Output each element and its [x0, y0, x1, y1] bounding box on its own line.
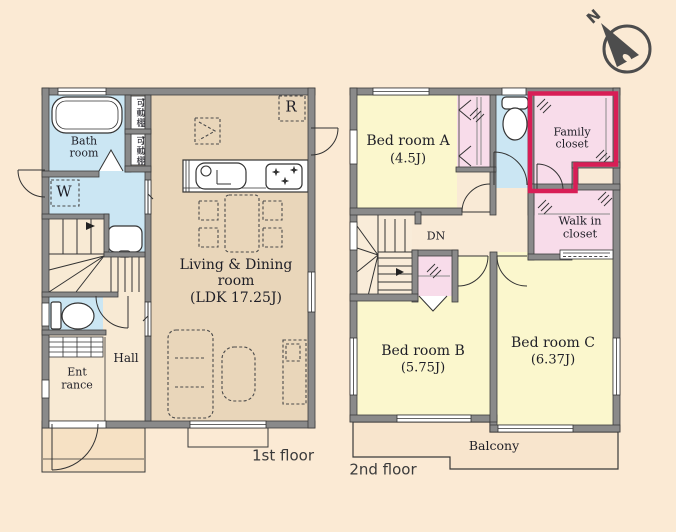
toilet-icon-1f: [51, 302, 94, 329]
entrance-porch: [42, 428, 145, 472]
movable-shelf-label-lower: 可動棚: [135, 136, 144, 166]
shoe-cabinet-icon: [49, 337, 103, 357]
second-floor-caption: 2nd floor: [349, 463, 416, 478]
movable-shelf-label-upper: 可動棚: [135, 98, 144, 128]
family-closet-label-2: closet: [556, 139, 589, 150]
kitchen-sink-icon: [196, 163, 246, 189]
bath-room-label-1: Bath: [71, 136, 97, 147]
bedroom-b-size-label: (5.75J): [401, 362, 445, 375]
balcony-label: Balcony: [469, 440, 519, 453]
bedroom-a-name-label: Bed room A: [366, 134, 449, 148]
floor1-plan: [18, 88, 338, 472]
bathtub-icon: [52, 97, 122, 133]
stairs-down-label: DN: [427, 231, 445, 242]
entrance-label-1: Ent: [67, 367, 87, 378]
bedroom-c-name-label: Bed room C: [511, 336, 595, 350]
toilet-icon-2f: [502, 97, 528, 140]
living-dining-label-1: Living & Dining: [180, 258, 293, 272]
family-closet-label-1: Family: [553, 127, 590, 138]
living-dining-label-2: room: [218, 274, 255, 288]
walk-in-closet-label-1: Walk in: [558, 215, 601, 227]
bath-room-label-2: room: [70, 148, 99, 159]
floor-plan-canvas: Bath room 可動棚 可動棚 W R Living & Dining ro…: [0, 0, 676, 532]
entrance-label-2: rance: [61, 380, 93, 391]
refrigerator-mark-label: R: [285, 100, 296, 115]
living-dining-size-label: (LDK 17.25J): [190, 291, 282, 305]
walk-in-closet-label-2: closet: [563, 228, 597, 240]
kitchen-counter: [183, 160, 308, 192]
compass-icon: [601, 23, 650, 72]
bedroom-c-size-label: (6.37J): [531, 354, 575, 367]
stove-icon: [266, 164, 302, 189]
bedroom-b-name-label: Bed room B: [381, 344, 465, 358]
washer-mark-label: W: [56, 185, 71, 200]
first-floor-caption: 1st floor: [252, 449, 314, 464]
floor-plan-drawing: [0, 0, 676, 532]
hall-label: Hall: [113, 352, 138, 364]
ldk-outdoor-step: [188, 428, 268, 447]
bedroom-a-size-label: (4.5J): [390, 153, 426, 166]
